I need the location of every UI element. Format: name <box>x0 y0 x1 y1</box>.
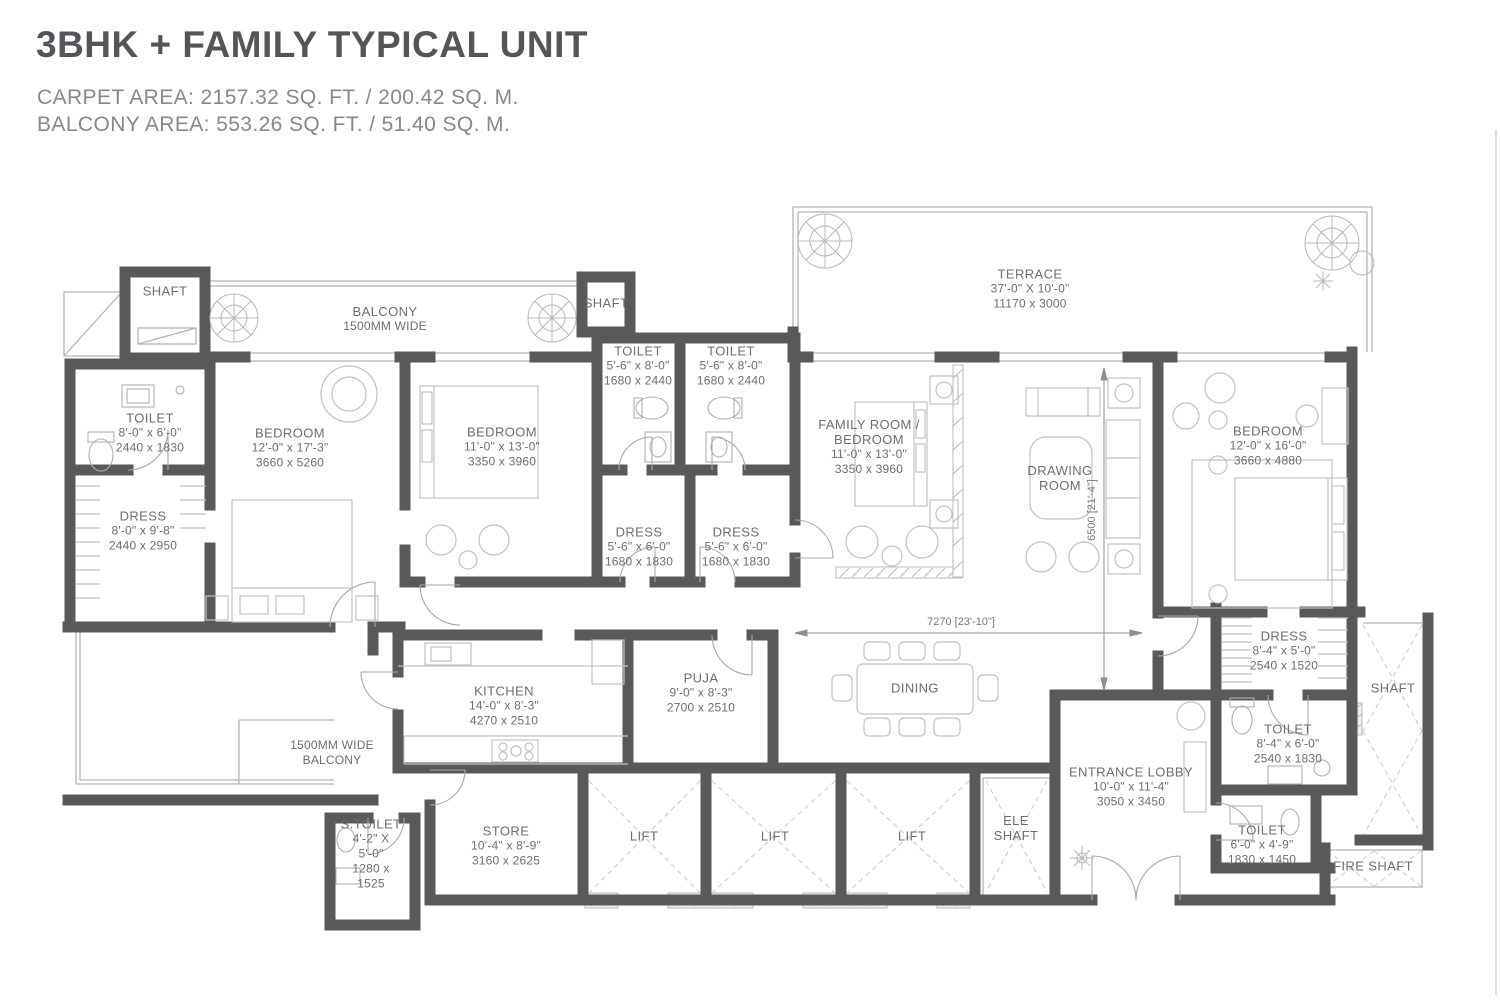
floor-plan-sheet: 3BHK + FAMILY TYPICAL UNIT CARPET AREA: … <box>0 0 1500 1000</box>
room-label-kitchen: KITCHEN 14'-0" x 8'-3" 4270 x 2510 <box>469 684 539 729</box>
room-label-balcony-top: BALCONY 1500MM WIDE <box>343 304 427 334</box>
room-label-lift-2: LIFT <box>761 829 789 844</box>
room-label-bedroom-1: BEDROOM 12'-0" x 17'-3" 3660 x 5260 <box>252 426 329 471</box>
room-label-store: STORE 10'-4" x 8'-9" 3160 x 2625 <box>471 824 541 869</box>
room-label-toilet-left: TOILET 8'-0" x 6'-0" 2440 x 1830 <box>116 411 184 456</box>
room-label-toilet-right-2: TOILET 6'-0" x 4'-9" 1830 x 1450 <box>1228 823 1296 868</box>
room-label-drawing-room: DRAWING ROOM <box>1027 463 1092 493</box>
dimension-drawing-depth: 6500 [21'-4"] <box>1086 479 1098 541</box>
room-label-dress-right: DRESS 8'-4" x 5'-0" 2540 x 1520 <box>1250 629 1318 674</box>
room-label-bedroom-2: BEDROOM 11'-0" x 13'-0" 3350 x 3960 <box>464 425 540 470</box>
room-label-dress-mid-1: DRESS 5'-6" x 6'-0" 1680 x 1830 <box>605 525 673 570</box>
room-label-dining: DINING <box>891 681 939 696</box>
room-label-toilet-right-1: TOILET 8'-4" x 6'-0" 2540 x 1830 <box>1254 722 1322 767</box>
room-label-bedroom-3: BEDROOM 12'-0" x 16'-0" 3660 x 4880 <box>1230 424 1307 469</box>
room-label-entrance-lobby: ENTRANCE LOBBY 10'-0" x 11'-4" 3050 x 34… <box>1069 765 1193 810</box>
room-label-family-room: FAMILY ROOM / BEDROOM 11'-0" x 13'-0" 33… <box>818 417 920 477</box>
room-label-ele-shaft: ELE SHAFT <box>994 813 1039 843</box>
room-label-shaft-top-2: SHAFT <box>584 296 629 311</box>
room-label-fire-shaft: FIRE SHAFT <box>1333 859 1413 874</box>
room-label-dress-mid-2: DRESS 5'-6" x 6'-0" 1680 x 1830 <box>702 525 770 570</box>
room-label-puja: PUJA 9'-0" x 8'-3" 2700 x 2510 <box>667 671 735 716</box>
room-label-shaft-top-left: SHAFT <box>143 284 188 299</box>
room-label-lift-3: LIFT <box>898 829 926 844</box>
room-label-toilet-mid-1: TOILET 5'-6" x 8'-0" 1680 x 2440 <box>604 344 672 389</box>
room-label-balcony-bottom: 1500MM WIDE BALCONY <box>290 738 374 768</box>
dimension-dining-width: 7270 [23'-10"] <box>927 616 995 628</box>
room-label-dress-left: DRESS 8'-0" x 9'-8" 2440 x 2950 <box>109 509 177 554</box>
room-label-toilet-mid-2: TOILET 5'-6" x 8'-0" 1680 x 2440 <box>697 344 765 389</box>
room-label-lift-1: LIFT <box>630 829 658 844</box>
room-label-shaft-right: SHAFT <box>1371 681 1416 696</box>
room-label-terrace: TERRACE 37'-0" X 10'-0" 11170 x 3000 <box>991 267 1070 312</box>
room-label-s-toilet: S.TOILET 4'-2" X 5'-0" 1280 x 1525 <box>341 817 402 892</box>
